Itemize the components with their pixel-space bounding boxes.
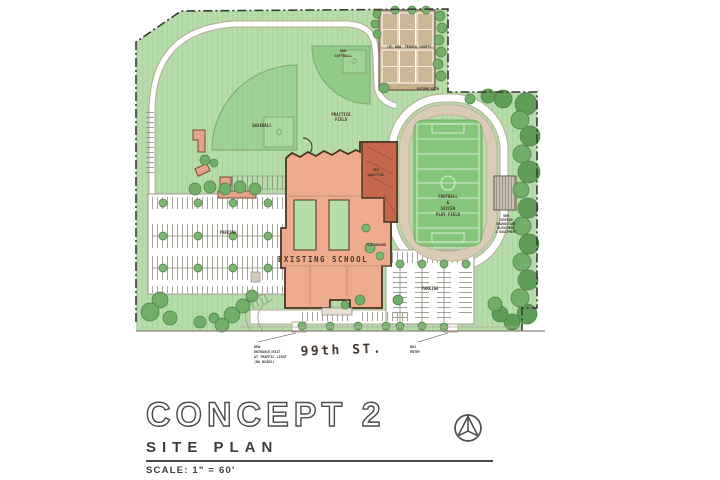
svg-text:TENNIS COURTS: TENNIS COURTS [405,45,432,49]
entry-plaza [322,308,352,315]
tennis-courts [379,10,435,90]
label-addition: NEW [373,168,379,172]
title-rule [146,460,493,462]
football-soccer-field [414,120,482,246]
page-subtitle: SITE PLAN [146,439,493,456]
svg-text:(NO BUSES): (NO BUSES) [254,360,274,364]
label-street-name: 99th ST. [300,342,383,360]
svg-text:FIELD: FIELD [335,117,348,122]
grandstand-bleachers [494,176,516,210]
courtyard [329,200,349,250]
page-title: CONCEPT 2 [146,398,493,432]
label-tennis: (6) NEW [387,45,402,49]
label-football: FOOTBALL [438,194,458,199]
svg-text:ENTRANCE/EXIT: ENTRANCE/EXIT [254,350,281,354]
svg-text:ENTRY: ENTRY [410,350,421,354]
label-softball: NEW [340,49,347,53]
label-future-path: FUTURE PATH [417,87,439,91]
label-playground: PLAYGROUND [366,243,386,247]
north-arrow-icon [449,409,487,447]
label-parking-south: PARKING [422,286,439,291]
label-bus-entry: BUS [410,345,416,349]
svg-text:& EQUIPMENT: & EQUIPMENT [495,230,516,234]
svg-text:SOFTBALL: SOFTBALL [334,54,352,58]
scale-note: SCALE: 1" = 60' [146,465,493,476]
site-plan-sheet: BASEBALL NEW SOFTBALL PRACTICE FIELD (6)… [0,0,720,480]
svg-text:SOCCER: SOCCER [441,206,456,211]
svg-text:PLAY FIELD: PLAY FIELD [436,212,461,217]
svg-text:AT TRAFFIC LIGHT: AT TRAFFIC LIGHT [254,355,287,359]
svg-text:ADDITION: ADDITION [368,173,383,177]
label-entrance-note: NEW [254,345,261,349]
label-parking-west: PARKING [220,230,237,235]
courtyard [294,200,316,250]
title-block: CONCEPT 2 SITE PLAN SCALE: 1" = 60' [146,398,493,476]
label-existing-school: EXISTING SCHOOL [278,255,368,264]
label-baseball: BASEBALL [252,123,272,128]
